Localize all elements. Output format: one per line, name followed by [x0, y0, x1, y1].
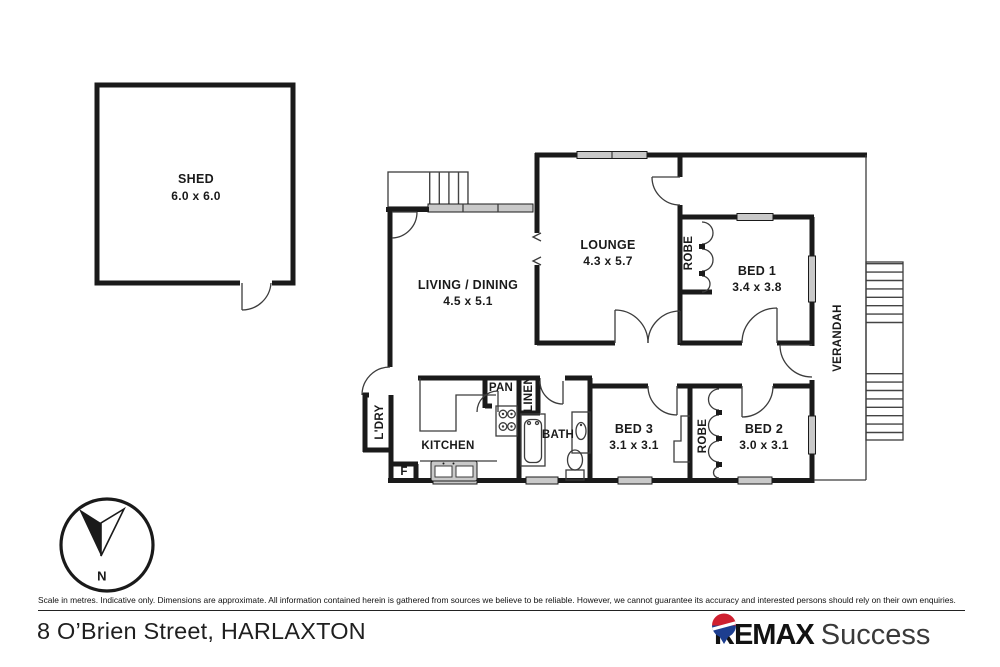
shed-label: SHED	[178, 172, 214, 186]
bath-label: BATH	[542, 429, 574, 441]
living-dining-label: LIVING / DINING	[418, 278, 518, 292]
toilet	[566, 450, 584, 480]
kitchen-label: KITCHEN	[421, 440, 474, 452]
stove-cooktop	[496, 406, 517, 436]
brand-secondary: Success	[821, 621, 931, 650]
bed3-label: BED 3	[615, 422, 653, 436]
linen-label: LINEN	[523, 376, 535, 412]
fridge-label: F	[400, 466, 407, 478]
north-label: N	[97, 569, 107, 584]
shed-dimensions: 6.0 x 6.0	[171, 189, 220, 203]
north-compass	[61, 499, 153, 591]
bed2-dimensions: 3.0 x 3.1	[739, 438, 788, 452]
footer-divider	[38, 610, 965, 611]
lounge-dimensions: 4.3 x 5.7	[583, 254, 632, 268]
living-dining-dimensions: 4.5 x 5.1	[443, 294, 492, 308]
bed2-label: BED 2	[745, 422, 783, 436]
remax-logo: REMAX Success	[711, 612, 930, 650]
kitchen-sink	[431, 461, 477, 481]
verandah-stairs	[866, 262, 903, 440]
bed3-dimensions: 3.1 x 3.1	[609, 438, 658, 452]
robe-bed2-label: ROBE	[697, 419, 709, 453]
disclaimer-text: Scale in metres. Indicative only. Dimens…	[38, 595, 956, 605]
floorplan-drawing	[0, 0, 1000, 667]
property-address: 8 O’Brien Street, HARLAXTON	[37, 618, 366, 645]
entry-steps	[388, 172, 533, 212]
laundry-label: L'DRY	[374, 404, 386, 439]
bed1-label: BED 1	[738, 264, 776, 278]
pantry-label: PAN	[489, 382, 513, 394]
robe-bed1-label: ROBE	[683, 236, 695, 270]
verandah-label: VERANDAH	[832, 304, 844, 372]
remax-balloon-icon	[711, 612, 737, 649]
floorplan-page: SHED 6.0 x 6.0 LIVING / DINING 4.5 x 5.1…	[0, 0, 1000, 667]
vanity-basin	[572, 412, 590, 453]
lounge-label: LOUNGE	[580, 238, 635, 252]
bed1-dimensions: 3.4 x 3.8	[732, 280, 781, 294]
